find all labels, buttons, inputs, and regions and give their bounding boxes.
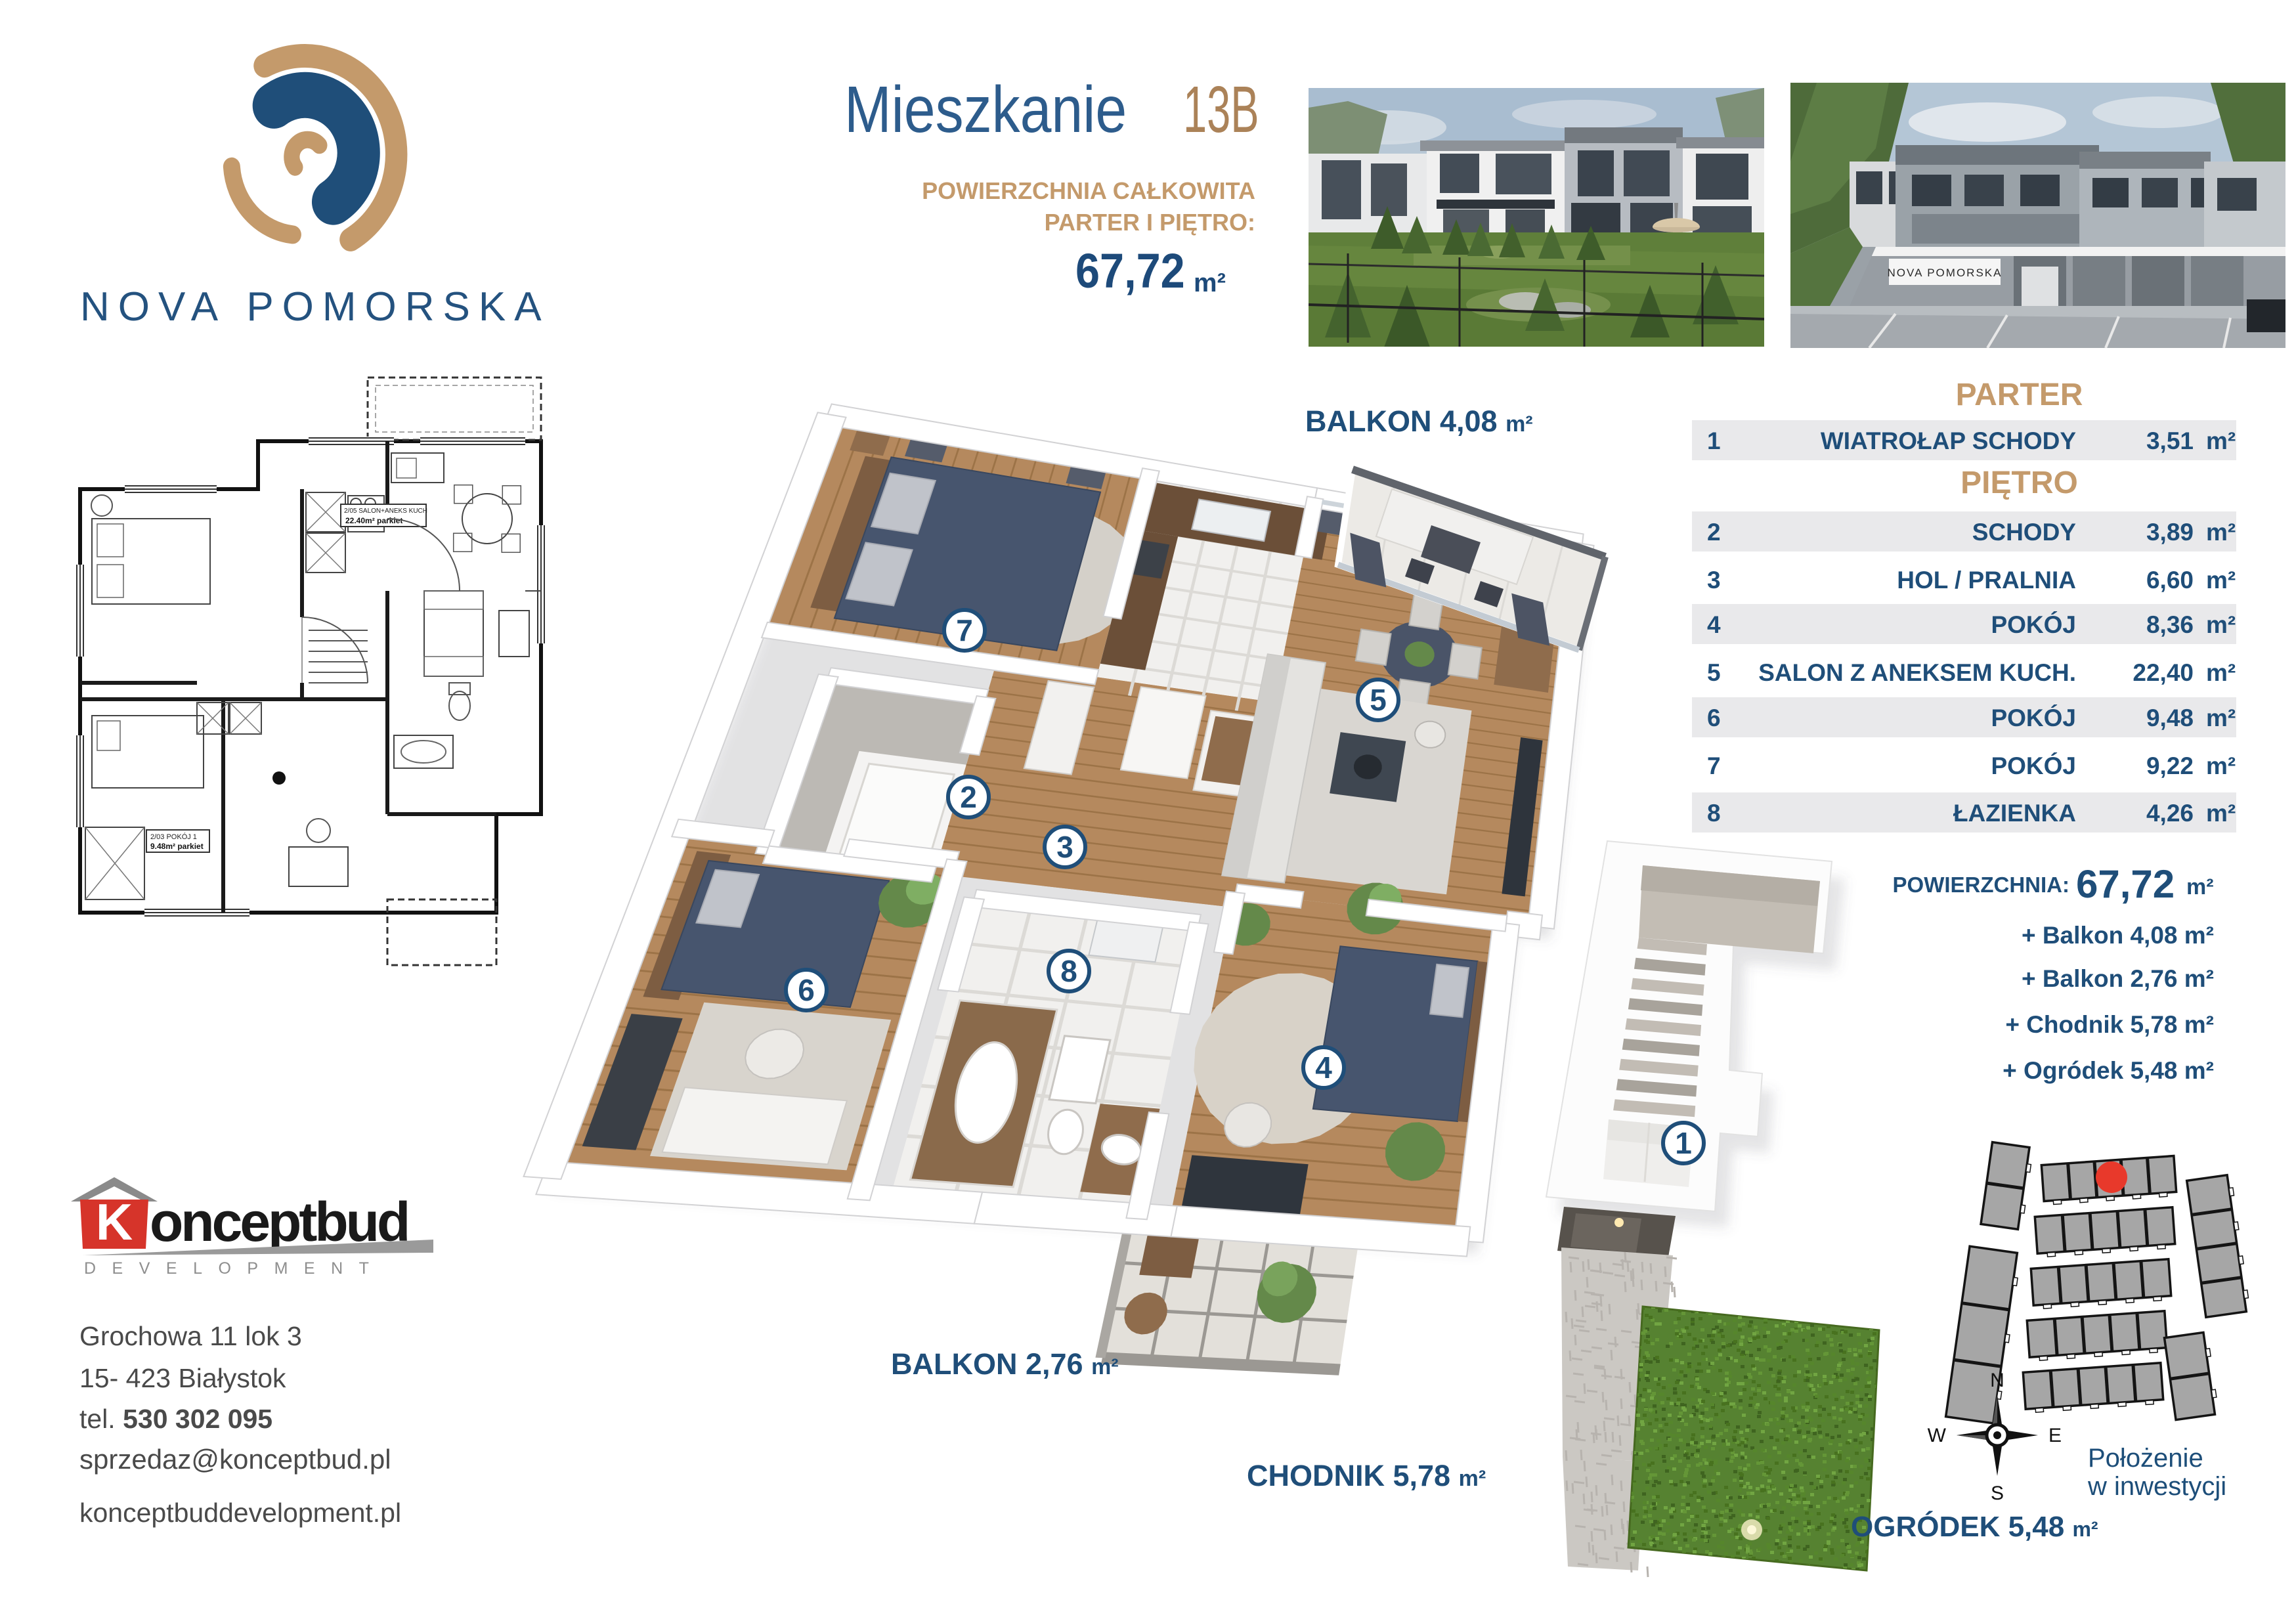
svg-text:S: S [1991, 1482, 2004, 1504]
svg-text:K: K [96, 1193, 133, 1251]
svg-text:DEVELOPMENT: DEVELOPMENT [84, 1259, 385, 1278]
svg-text:N: N [1990, 1370, 2004, 1391]
svg-text:E: E [2048, 1425, 2062, 1446]
svg-text:W: W [1928, 1425, 1947, 1446]
